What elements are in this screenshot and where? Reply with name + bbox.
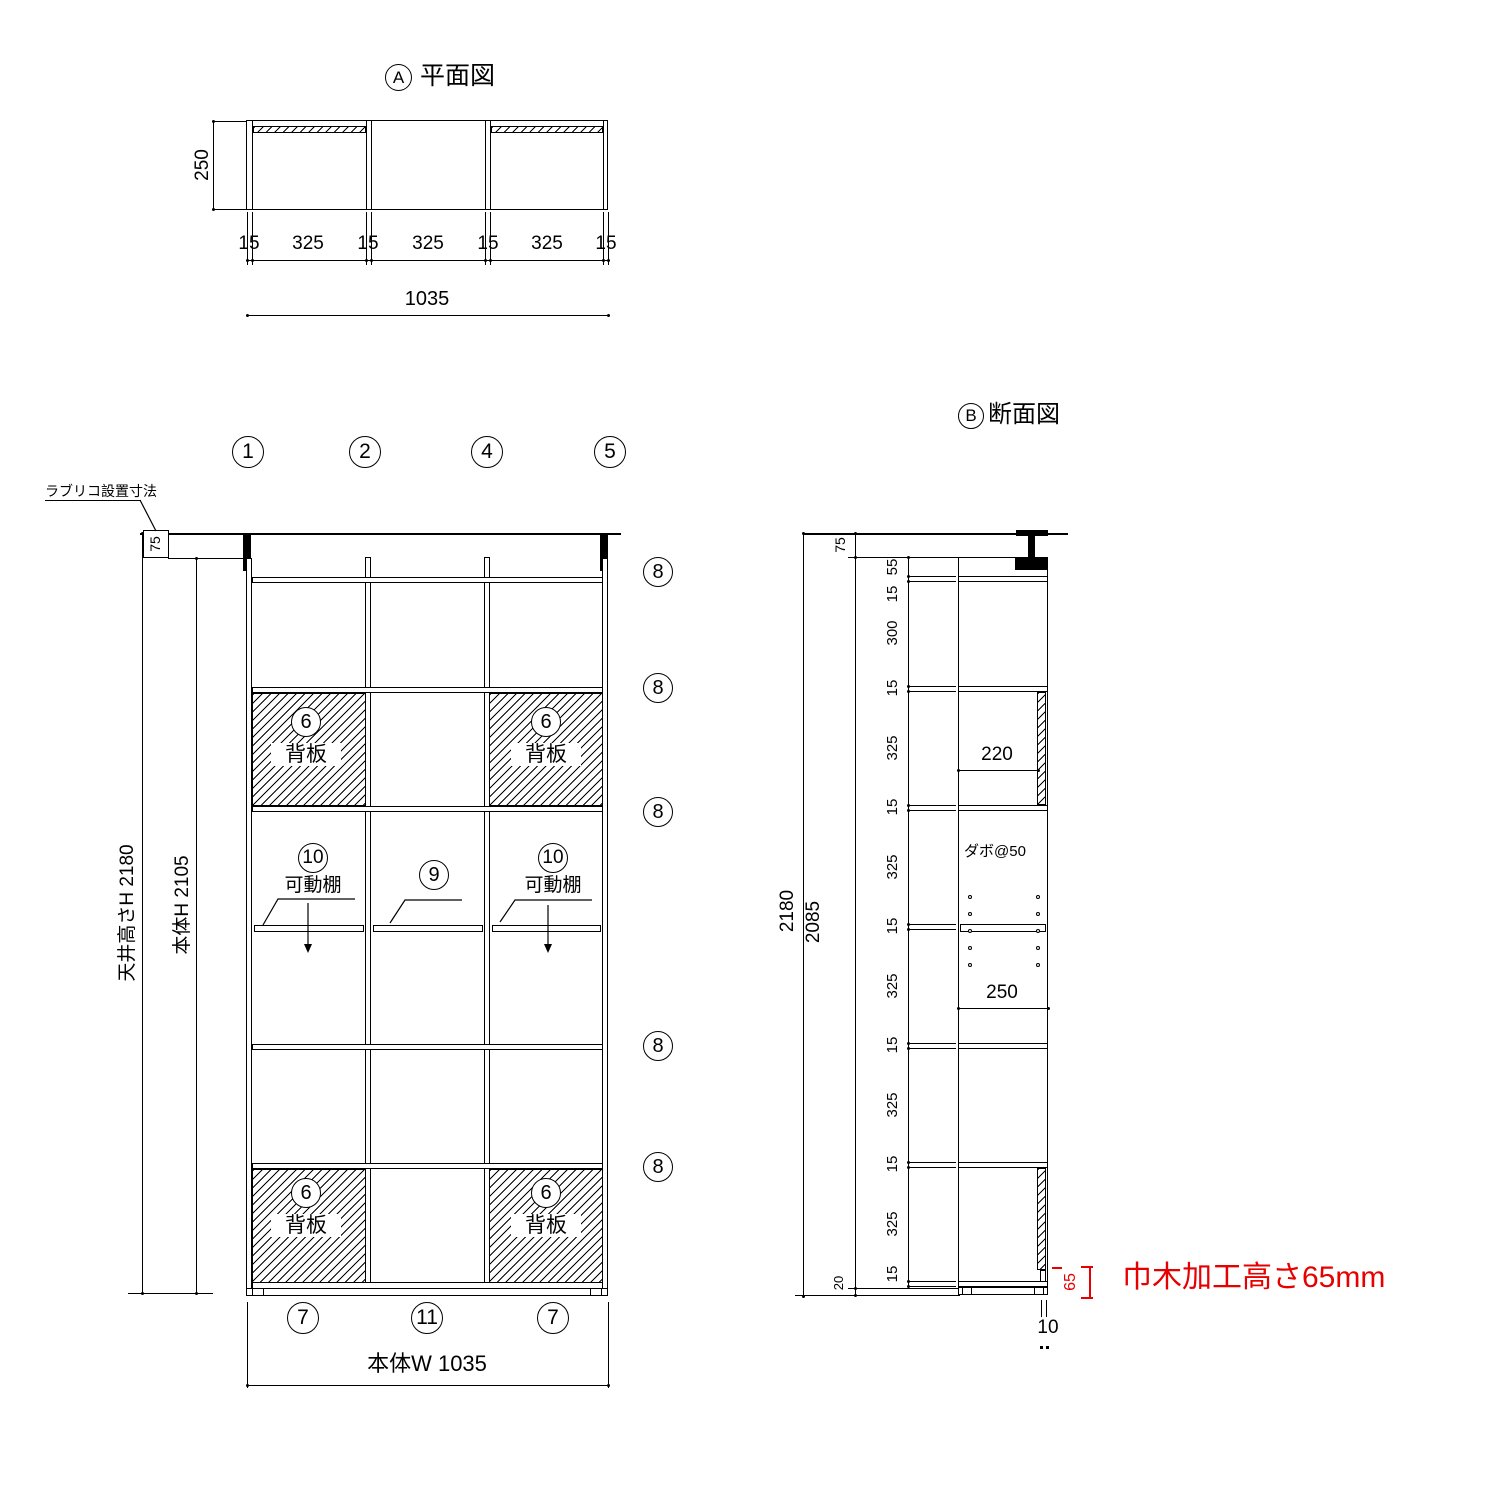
marker-text: 8 [652,677,663,700]
base-foot-left [252,1288,264,1296]
shelf-marker-8: 8 [643,797,673,827]
notch-dim-tick [1081,1266,1093,1268]
section-gap-dim: 75 [833,520,849,570]
section-ext [908,576,956,577]
marker-text: 6 [540,711,551,734]
marker-text: 6 [300,711,311,734]
ceiling-line [140,533,621,535]
section-ext [848,557,958,558]
bottom-marker-7: 7 [287,1302,319,1334]
base-foot-right [590,1288,602,1296]
marker-text: 8 [652,801,663,824]
plan-overall-dim-line [247,315,608,316]
bottom-marker-11: 11 [411,1302,443,1334]
section-chain-dim: 15 [885,1023,901,1067]
tick [907,575,910,578]
marker-text: 10 [302,847,323,869]
tick [1037,769,1040,772]
tick [195,1292,198,1295]
tick [489,259,492,262]
back-panel-marker: 6 [531,1178,561,1208]
section-back-panel-lower [1037,1168,1046,1270]
back-panel-label: 背板 [271,743,341,766]
back-panel-label: 背板 [271,1214,341,1237]
width-ext-right [608,1302,609,1388]
tick [141,1292,144,1295]
section-chain-dim: 325 [885,1083,901,1127]
tick [195,557,198,560]
tick [854,532,857,535]
section-ext [908,1281,956,1282]
dowel-hole [1036,929,1040,933]
plan-view-title: 平面図 [420,63,495,91]
marker-text: 9 [428,864,439,887]
movable-shelf-left [254,925,364,932]
gap-dim: 75 [149,524,163,564]
section-chain-dim: 300 [885,611,901,655]
movable-shelf-middle [373,925,483,932]
tick [1046,1346,1049,1349]
plan-chain-dim: 325 [278,234,338,255]
movable-shelf-right [492,925,601,932]
tick [907,1166,910,1169]
section-top-shelf [958,576,1048,582]
tick [907,928,910,931]
section-view-title: 断面図 [988,402,1060,428]
section-body-dim-line [855,533,856,1295]
labrico-bracket-stem [1028,536,1035,558]
section-chain-dim-line [908,557,909,1286]
fixed-shelf-top [252,577,603,583]
section-ext [908,581,956,582]
plan-chain-dim: 325 [517,234,577,255]
tick [212,120,215,123]
tick [907,556,910,559]
middle-shelf-marker: 9 [419,860,449,890]
tick [484,259,487,262]
section-ext [795,1295,960,1296]
marker-text: B [965,406,976,426]
panel-marker-5: 5 [594,436,626,468]
notch-note: 巾木加工高さ65mm [1122,1261,1385,1294]
marker-text: 8 [652,1156,663,1179]
labrico-bracket-block [1015,557,1048,570]
back-gap-dim: 10 [1028,1318,1068,1339]
panel-marker-4: 4 [471,436,503,468]
plan-marker-letter: A [393,68,404,88]
section-ext [908,1167,956,1168]
panel-marker-2: 2 [349,436,381,468]
tick [907,685,910,688]
plan-divider1-line2 [371,121,372,209]
tick [907,580,910,583]
dowel-hole [1036,946,1040,950]
marker-text: 8 [652,1035,663,1058]
section-ext [908,805,956,806]
marker-text: 7 [297,1306,309,1330]
ceiling-height-dim: 天井高さH 2180 [118,803,138,1023]
tick [957,1007,960,1010]
section-overall-dim: 2180 [778,811,798,1011]
plan-divider2-line2 [490,121,491,209]
section-shelf [958,686,1048,692]
body-width-dim-line [247,1385,608,1386]
movable-shelf-label: 可動棚 [273,876,353,897]
tick [251,259,254,262]
plan-depth-ext-top [214,121,246,122]
width-ext-left [247,1302,248,1388]
marker-text: 4 [481,440,493,464]
base-board [246,1288,608,1296]
dowel-hole [1036,963,1040,967]
dowel-hole [968,946,972,950]
notch-dim-tick [1081,1297,1093,1299]
tick [365,259,368,262]
tick [907,1161,910,1164]
shelf-depth-dim-line [958,1008,1048,1009]
back-panel-marker: 6 [291,1178,321,1208]
ceiling-height-dim-line [142,533,143,1293]
back-panel-marker: 6 [291,707,321,737]
section-ext [908,686,956,687]
section-chain-dim: 15 [885,666,901,710]
marker-text: 11 [416,1306,438,1330]
dowel-hole [968,912,972,916]
section-chain-dim: 325 [885,964,901,1008]
section-shelf [958,1043,1048,1049]
plan-overall-dim: 1035 [367,288,487,310]
section-chain-dim: 325 [885,845,901,889]
shelf-marker-8: 8 [643,557,673,587]
marker-text: 7 [547,1306,559,1330]
tick [907,923,910,926]
tick [370,259,373,262]
tick [907,804,910,807]
section-baseboard-notch [1040,1270,1046,1282]
plan-chain-dim: 15 [458,234,518,255]
section-shelf [958,1162,1048,1168]
back-panel-label: 背板 [511,1214,581,1237]
section-view-marker: B [958,403,984,429]
tick [907,1285,910,1288]
back-gap-ext [1041,1300,1042,1317]
section-ext [848,1288,960,1289]
movable-shelf-marker: 10 [298,843,328,873]
movable-shelf-marker: 10 [538,843,568,873]
shelf-depth-dim: 250 [972,983,1032,1004]
fixed-shelf-4 [252,1044,603,1050]
section-ext [908,1162,956,1163]
tick [907,690,910,693]
plan-chain-dim: 15 [576,234,636,255]
section-ext [908,929,956,930]
marker-text: 6 [300,1182,311,1205]
plan-view-marker: A [385,64,412,91]
back-panel-label: 背板 [511,743,581,766]
marker-text: 2 [359,440,371,464]
plan-divider1-line [366,121,367,209]
section-chain-dim: 15 [885,1252,901,1296]
shelf-marker-8: 8 [643,1031,673,1061]
dowel-hole [1036,895,1040,899]
labrico-note-underline [45,500,141,501]
tick [607,1384,610,1387]
drawing-canvas: A 平面図 250 15 325 15 325 15 325 15 1035 1… [0,0,1500,1500]
upper-depth-dim-line [958,770,1038,771]
tick [607,314,610,317]
section-back-panel-upper [1037,692,1046,805]
section-shelf [958,805,1048,811]
plan-back-panel-right [491,126,603,133]
tick [246,1384,249,1387]
section-body-dim: 2085 [804,822,824,1022]
tick [1040,1346,1043,1349]
movable-shelf-label: 可動棚 [513,876,593,897]
section-movable-shelf [960,924,1046,932]
marker-text: 5 [604,440,616,464]
section-chain-dim: 15 [885,904,901,948]
dowel-hole [968,929,972,933]
shelf-marker-8: 8 [643,1152,673,1182]
dowel-hole [968,963,972,967]
plan-chain-dim: 325 [398,234,458,255]
tick [1047,1007,1050,1010]
plan-depth-ext-bottom [214,209,246,210]
plan-chain-dim-line [247,260,608,261]
section-ext [908,810,956,811]
plan-divider2-line [485,121,486,209]
dowel-hole [968,895,972,899]
section-base-foot [962,1287,972,1295]
section-ext [908,1043,956,1044]
section-chain-dim: 15 [885,572,901,616]
tick [907,1047,910,1050]
tick [602,259,605,262]
plan-outline [246,120,608,210]
marker-text: 6 [540,1182,551,1205]
plan-right-panel-line [603,121,604,209]
section-chain-dim: 15 [885,785,901,829]
plan-left-panel-line [252,121,253,209]
tick [907,1042,910,1045]
body-width-dim: 本体W 1035 [327,1352,527,1376]
dowel-hole [1036,912,1040,916]
plan-chain-dim: 15 [219,234,279,255]
panel-marker-1: 1 [232,436,264,468]
shelf-marker-8: 8 [643,673,673,703]
section-base-foot [1034,1287,1044,1295]
section-ext [908,691,956,692]
section-chain-dim: 325 [885,1202,901,1246]
section-base-dim: 20 [832,1263,846,1303]
marker-text: 1 [242,440,254,464]
tick [212,208,215,211]
body-top-ext-line [168,558,246,559]
section-chain-dim: 325 [885,726,901,770]
notch-dim-tick [1052,1267,1062,1269]
bottom-marker-7: 7 [537,1302,569,1334]
tick [246,259,249,262]
body-height-dim-line [196,558,197,1293]
section-ext [908,924,956,925]
body-height-dim: 本体H 2105 [173,795,193,1015]
section-ext [908,1048,956,1049]
marker-text: 10 [542,847,563,869]
tick [957,769,960,772]
plan-back-panel-left [253,126,366,133]
fixed-shelf-3 [252,806,603,812]
tick [907,1280,910,1283]
section-ext [908,1286,956,1287]
plan-depth-dim: 250 [195,135,211,195]
tick [802,532,805,535]
tick [907,809,910,812]
dowel-note: ダボ@50 [964,844,1026,861]
tick [607,259,610,262]
notch-dim-line [1089,1266,1091,1299]
labrico-note: ラブリコ設置寸法 [45,484,157,499]
plan-chain-dim: 15 [338,234,398,255]
marker-text: 8 [652,561,663,584]
section-chain-dim: 15 [885,1142,901,1186]
notch-dim: 65 [1063,1262,1079,1302]
back-gap-ext [1046,1300,1047,1317]
upper-depth-dim: 220 [967,745,1027,766]
tick [246,314,249,317]
back-panel-marker: 6 [531,707,561,737]
